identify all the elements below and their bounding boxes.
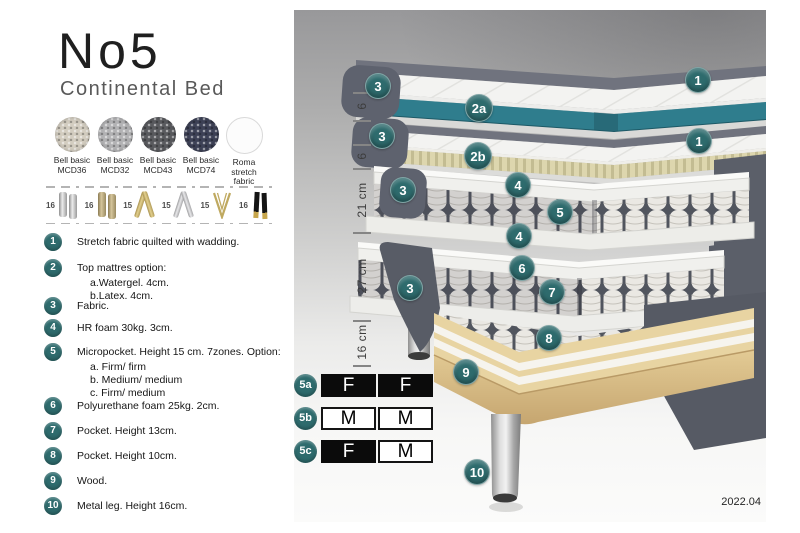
feature-item: 8 Pocket. Height 10cm.	[44, 447, 177, 465]
info-column: No5 Continental Bed Bell basicMCD36 Bell…	[0, 0, 294, 533]
ruler-tick	[353, 168, 371, 170]
ruler-tick	[353, 320, 371, 322]
leg-option: 16	[239, 186, 272, 224]
feature-item: 4 HR foam 30kg. 3cm.	[44, 319, 173, 337]
version-label: 2022.04	[721, 496, 761, 508]
callout-badge: 3	[369, 123, 395, 149]
callout-badge: 10	[464, 459, 490, 485]
fabric-swatch: Bell basicMCD74	[181, 117, 221, 187]
callout-badge: 2b	[464, 142, 492, 170]
callout-badge: 1	[686, 128, 712, 154]
leg-icon-cross-silver	[173, 191, 195, 219]
firmness-cell: M	[378, 440, 433, 463]
callout-badge: 7	[539, 279, 565, 305]
fabric-swatch-label: Bell basicMCD74	[183, 156, 219, 175]
fabric-swatch: Bell basicMCD43	[138, 117, 178, 187]
feature-number-badge: 6	[44, 397, 62, 415]
feature-number-badge: 10	[44, 497, 62, 515]
feature-item: 5 Micropocket. Height 15 cm. 7zones. Opt…	[44, 343, 281, 400]
firmness-row: 5b M M	[294, 407, 433, 430]
leg-height: 16	[85, 201, 94, 210]
fabric-swatch-label: Bell basicMCD36	[54, 156, 90, 175]
page-title: No5	[58, 22, 162, 80]
feature-item: 7 Pocket. Height 13cm.	[44, 422, 177, 440]
fabric-swatch-label: Bell basicMCD32	[97, 156, 133, 175]
fabric-swatch: Bell basicMCD36	[52, 117, 92, 187]
feature-number-badge: 1	[44, 233, 62, 251]
leg-icon-cross-gold	[134, 191, 156, 219]
callout-badge: 5	[547, 199, 573, 225]
feature-text: Wood.	[77, 472, 107, 490]
ruler-tick	[353, 232, 371, 234]
firmness-cell: F	[321, 440, 376, 463]
feature-number-badge: 2	[44, 259, 62, 277]
ruler-label: 21 cm	[355, 182, 369, 217]
callout-badge: 2a	[465, 94, 493, 122]
leg-height: 15	[123, 201, 132, 210]
leg-option: 16	[85, 186, 118, 224]
leg-height: 16	[239, 201, 248, 210]
product-sheet: { "header": { "title": "No5", "subtitle"…	[0, 0, 800, 533]
callout-badge: 8	[536, 325, 562, 351]
feature-item: 6 Polyurethane foam 25kg. 2cm.	[44, 397, 219, 415]
feature-text: HR foam 30kg. 3cm.	[77, 319, 173, 337]
callout-badge: 1	[685, 67, 711, 93]
ruler-label: 6	[355, 102, 369, 109]
fabric-swatch-circle	[141, 117, 176, 152]
feature-number-badge: 9	[44, 472, 62, 490]
feature-number-badge: 5	[44, 343, 62, 361]
leg-icon-cylinder-brass	[96, 191, 118, 219]
feature-number-badge: 8	[44, 447, 62, 465]
ruler-tick	[353, 365, 371, 367]
callout-badge: 3	[365, 73, 391, 99]
leg-option: 15	[162, 186, 195, 224]
ruler-tick	[353, 120, 371, 122]
feature-item: 3 Fabric.	[44, 297, 109, 315]
leg-icon-tapered-black-gold	[250, 191, 272, 219]
firmness-cell: M	[378, 407, 433, 430]
feature-text: Polyurethane foam 25kg. 2cm.	[77, 397, 219, 415]
feature-number-badge: 3	[44, 297, 62, 315]
metal-leg-front	[489, 414, 523, 512]
ruler-label: 16 cm	[355, 324, 369, 359]
firmness-row: 5a F F	[294, 374, 433, 397]
feature-text: Micropocket. Height 15 cm. 7zones. Optio…	[77, 343, 281, 361]
feature-item: 9 Wood.	[44, 472, 107, 490]
firmness-row: 5c F M	[294, 440, 433, 463]
fabric-swatch-label: Romastretch fabric	[224, 158, 264, 187]
feature-subitem: b. Medium/ medium	[90, 374, 281, 387]
diagram-panel: 6 6 21 cm 27 cm 16 cm 3 2a 1 3 2b 1 4 5 …	[294, 10, 766, 522]
firmness-row-badge: 5c	[294, 440, 317, 463]
leg-options: 16 16 15 15 15 16	[46, 186, 272, 224]
feature-text: Pocket. Height 13cm.	[77, 422, 177, 440]
firmness-cell: F	[321, 374, 376, 397]
callout-badge: 3	[397, 275, 423, 301]
ruler-label: 6	[355, 152, 369, 159]
callout-badge: 9	[453, 359, 479, 385]
callout-badge: 4	[505, 172, 531, 198]
leg-height: 15	[162, 201, 171, 210]
hairpin-leg-icon	[211, 191, 233, 219]
feature-text: Top mattres option:	[77, 259, 169, 277]
feature-item: 10 Metal leg. Height 16cm.	[44, 497, 187, 515]
fabric-swatch-circle	[184, 117, 219, 152]
firmness-cell: M	[321, 407, 376, 430]
leg-height: 16	[46, 201, 55, 210]
fabric-swatch: Romastretch fabric	[224, 117, 264, 187]
callout-badge: 4	[506, 223, 532, 249]
leg-icon-hairpin-gold	[211, 191, 233, 219]
fabric-swatch: Bell basicMCD32	[95, 117, 135, 187]
feature-text: Fabric.	[77, 297, 109, 315]
leg-option: 15	[123, 186, 156, 224]
fabric-swatch-label: Bell basicMCD43	[140, 156, 176, 175]
feature-number-badge: 4	[44, 319, 62, 337]
ruler-tick	[353, 144, 371, 146]
feature-item: 1 Stretch fabric quilted with wadding.	[44, 233, 239, 251]
feature-text: Pocket. Height 10cm.	[77, 447, 177, 465]
leg-option: 16	[46, 186, 79, 224]
feature-text: Stretch fabric quilted with wadding.	[77, 233, 239, 251]
leg-option: 15	[200, 186, 233, 224]
firmness-table: 5a F F 5b M M 5c F M	[294, 374, 433, 473]
leg-height: 15	[200, 201, 209, 210]
fabric-swatch-circle	[226, 117, 263, 154]
page-subtitle: Continental Bed	[60, 78, 225, 101]
firmness-cell: F	[378, 374, 433, 397]
feature-subitem: a. Firm/ firm	[90, 361, 281, 374]
fabric-swatch-circle	[55, 117, 90, 152]
callout-badge: 3	[390, 177, 416, 203]
feature-number-badge: 7	[44, 422, 62, 440]
feature-subitem: a.Watergel. 4cm.	[90, 277, 169, 290]
leg-icon-cylinder-silver	[57, 191, 79, 219]
callout-badge: 6	[509, 255, 535, 281]
fabric-swatch-circle	[98, 117, 133, 152]
firmness-row-badge: 5b	[294, 407, 317, 430]
firmness-row-badge: 5a	[294, 374, 317, 397]
ruler-label: 27 cm	[355, 258, 369, 293]
fabric-swatches: Bell basicMCD36 Bell basicMCD32 Bell bas…	[52, 117, 264, 187]
feature-text: Metal leg. Height 16cm.	[77, 497, 187, 515]
